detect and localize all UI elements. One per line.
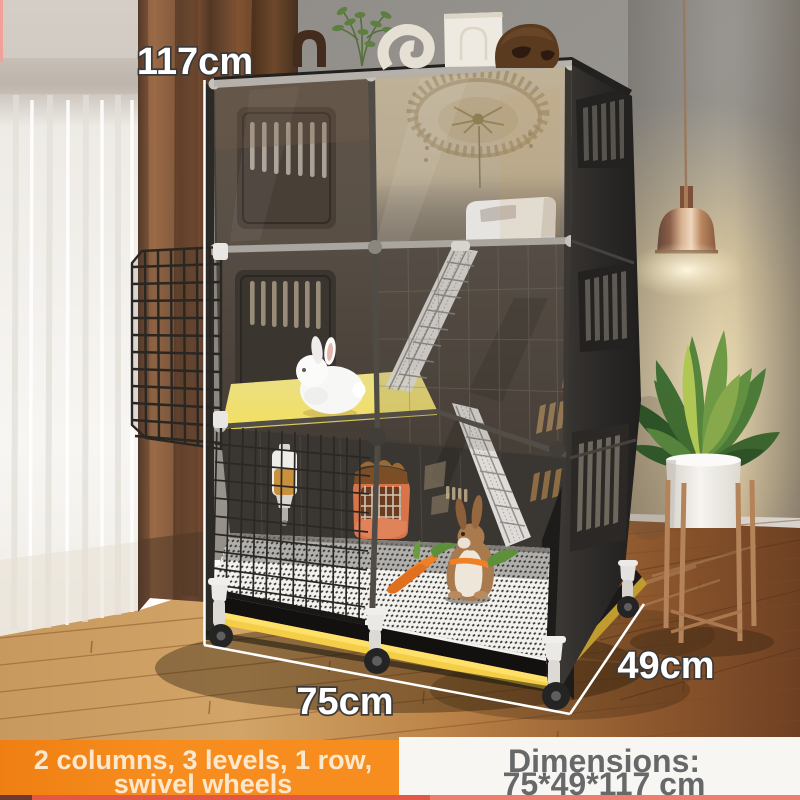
svg-text:swivel wheels: swivel wheels (114, 769, 293, 799)
svg-text:75cm: 75cm (296, 681, 393, 723)
svg-text:49cm: 49cm (617, 645, 714, 687)
svg-text:75*49*117 cm: 75*49*117 cm (503, 766, 706, 800)
svg-text:117cm: 117cm (137, 41, 253, 83)
